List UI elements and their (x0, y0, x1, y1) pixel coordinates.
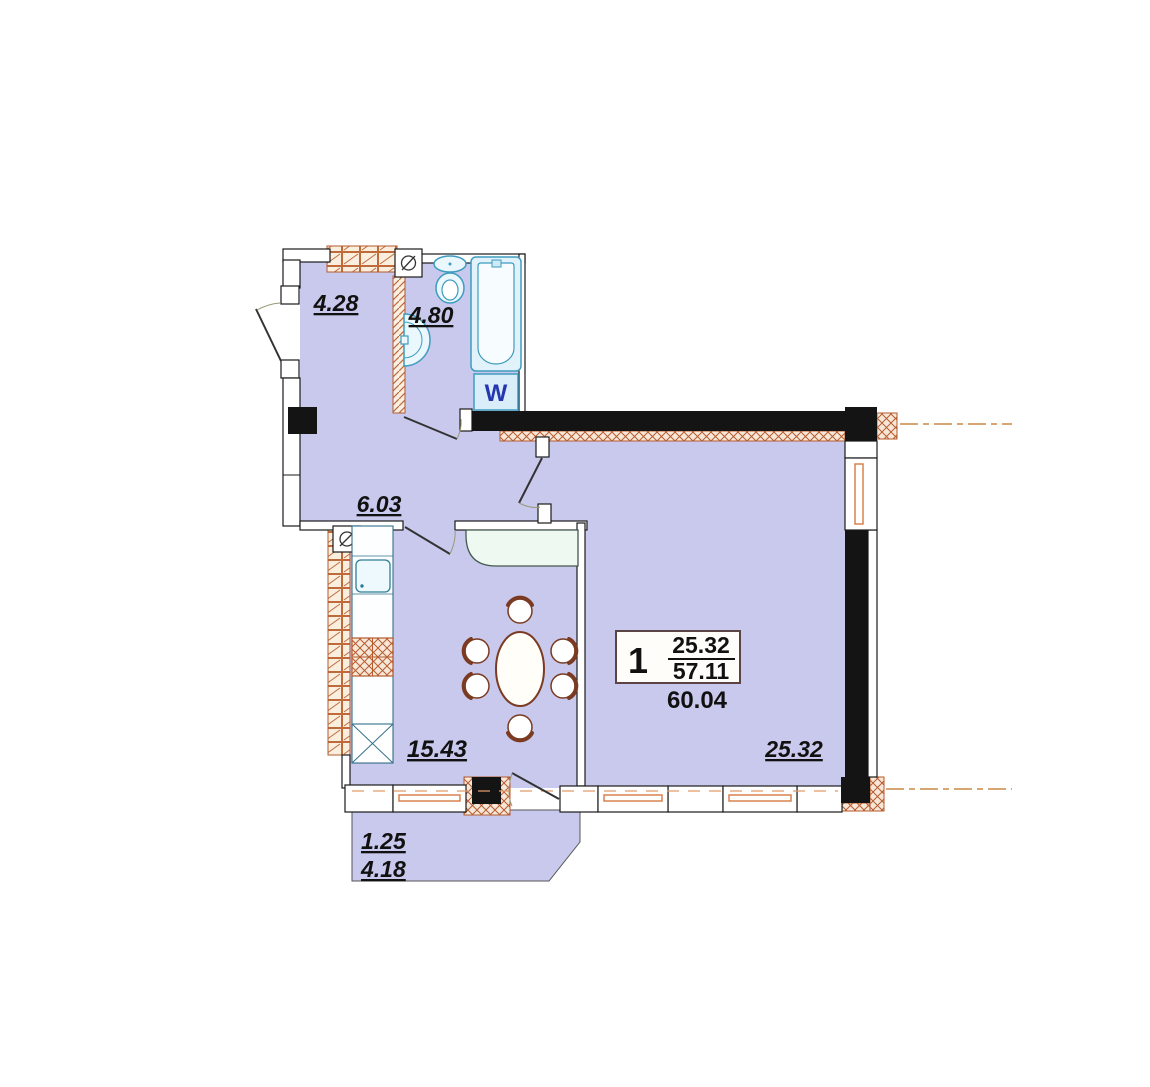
window-bottom-1 (598, 786, 668, 812)
right-wall-white-strip (868, 530, 877, 777)
chair (508, 598, 532, 623)
kitchen-sink-tap (360, 584, 363, 587)
kitchen-area-label: 15.43 (407, 736, 468, 763)
chair (464, 639, 489, 663)
wall-hall-bottom-b (455, 521, 587, 530)
entrance-jamb-bottom (281, 360, 299, 378)
toilet-bowl-inner (442, 280, 458, 300)
corner-top-right-black (845, 407, 877, 441)
wall-left-mid (283, 378, 300, 526)
bathtub-faucet (492, 260, 501, 267)
wall-kitchen-left-lower (342, 755, 350, 788)
stove (352, 638, 393, 676)
chair (551, 674, 576, 698)
balcony-reduced-area-label: 1.25 (361, 828, 407, 854)
wall-xhatch-corner-tr (877, 413, 897, 439)
living-area-label: 25.32 (764, 736, 823, 762)
wall-brick-top (327, 246, 397, 272)
bathroom-area-label: 4.80 (408, 302, 454, 328)
toilet (434, 256, 466, 303)
chair (508, 715, 532, 740)
washing-machine-label: W (485, 380, 508, 407)
basin-tap (401, 336, 408, 344)
bathtub (471, 257, 521, 371)
info-total-area: 57.11 (673, 658, 729, 684)
hall-area-label: 6.03 (357, 491, 402, 517)
floor-plan-drawing: W (0, 0, 1150, 1087)
wall-xhatch-corner-br-v (870, 777, 884, 811)
info-living-area: 25.32 (672, 632, 730, 658)
floor-plan-page: W (0, 0, 1150, 1087)
wall-left-upper (283, 260, 300, 288)
info-overall-area: 60.04 (667, 687, 728, 714)
pier-bottom-3 (797, 786, 842, 812)
wall-top-black (472, 411, 845, 431)
pier-bottom-2 (668, 786, 723, 812)
wall-xhatch-corner-br-h (841, 803, 870, 811)
balcony-area-label: 4.18 (360, 856, 406, 882)
toilet-button (449, 263, 452, 266)
entrance-jamb-top (281, 286, 299, 304)
corner-bottom-right-black (841, 777, 870, 803)
window-bottom-2 (723, 786, 797, 812)
info-room-count: 1 (628, 640, 648, 681)
hallway-area-label: 4.28 (313, 290, 359, 316)
bathtub-inner (478, 263, 514, 364)
washing-machine: W (474, 374, 518, 410)
pier-left-black (288, 407, 317, 434)
pier-kitchen-bottom (345, 785, 393, 812)
fridge (352, 724, 393, 763)
entrance-door-swing (257, 303, 280, 310)
wall-brick-kitchen-left (328, 524, 350, 755)
right-wall-sill (845, 441, 877, 458)
bath-door-jamb (460, 409, 472, 431)
chair (551, 639, 576, 663)
chair (464, 674, 489, 698)
hall-living-jamb-top (536, 437, 549, 457)
wall-xhatch-top-strip (500, 431, 845, 441)
wall-right-black (845, 530, 868, 777)
window-kitchen (393, 785, 466, 812)
window-right (845, 458, 877, 530)
wardrobe (466, 530, 578, 566)
entrance-door-leaf (256, 309, 281, 361)
pier-bottom-1 (560, 786, 598, 812)
dining-table (496, 632, 544, 706)
